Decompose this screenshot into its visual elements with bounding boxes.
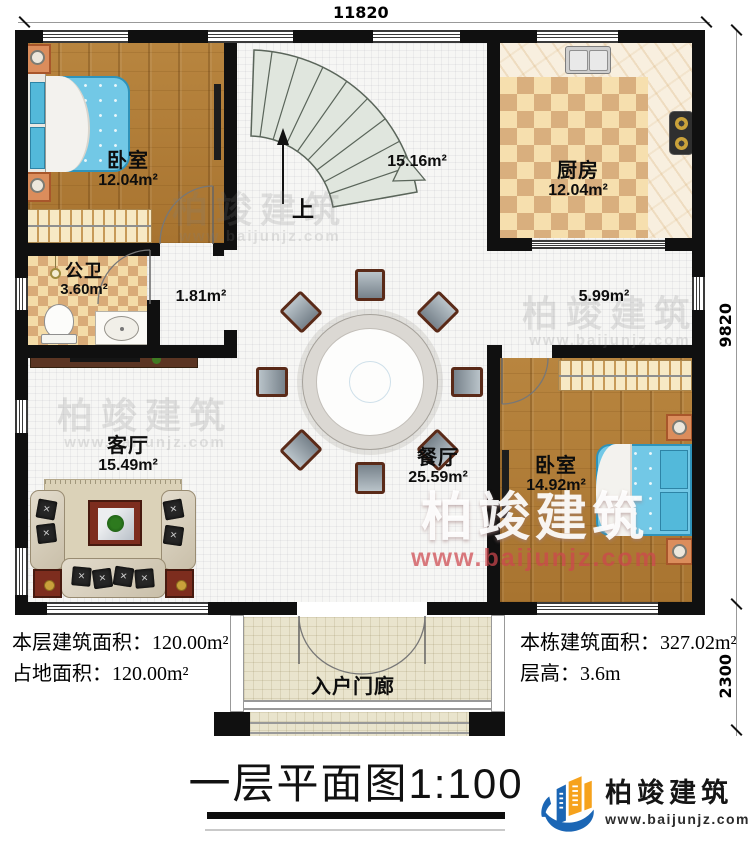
wall-bottom [427, 602, 537, 615]
sofa-cushion: ✕ [134, 568, 155, 589]
wall-bottom [658, 602, 705, 615]
nightstand [666, 538, 693, 565]
window [537, 602, 658, 615]
wall-bedroom-left [224, 43, 237, 250]
brand-website: www.baijunjz.com [605, 811, 750, 827]
dimension-line-top [18, 22, 710, 23]
wall-kitchen-left [487, 43, 500, 250]
label-hallway-area: 1.81m² [176, 288, 227, 306]
window [208, 30, 293, 43]
bed-left-pillow [30, 82, 45, 124]
sink-basin [569, 50, 588, 71]
sofa-cushion: ✕ [36, 523, 57, 544]
dining-chair [355, 462, 385, 494]
tv-bedroom-right [502, 450, 509, 518]
sink-basin [589, 50, 608, 71]
stats-right: 本栋建筑面积：327.02m² 层高：3.6m [520, 628, 737, 690]
label-bathroom: 公卫 3.60m² [60, 262, 108, 298]
porch-column [469, 712, 505, 736]
wall-kitchen-bottom [487, 238, 532, 251]
window [47, 602, 208, 615]
bed-left-pillow [30, 127, 45, 169]
brand-logo-icon [540, 770, 599, 836]
plant-icon [107, 515, 124, 532]
floor-plan-canvas: 11820 9820 2300 ✕ ✕ [0, 0, 750, 842]
stove [669, 111, 694, 155]
door-bedroom-right [500, 356, 550, 406]
label-stair-hall-area: 15.16m² [387, 153, 447, 171]
label-living: 客厅 15.49m² [98, 435, 158, 475]
lamp-icon [672, 544, 687, 559]
nightstand [24, 172, 51, 202]
stats-land-area: 占地面积：120.00m² [12, 659, 229, 690]
wall-kitchen-bottom [665, 238, 692, 251]
label-up: 上 [292, 192, 314, 224]
toilet-tank [41, 334, 77, 344]
side-table [165, 569, 194, 598]
nightstand [666, 414, 693, 441]
porch-step-line [250, 722, 469, 724]
wall-right [692, 30, 705, 615]
wardrobe-bedroom-right [558, 360, 692, 391]
title-underline-thin [205, 829, 505, 831]
spiral-staircase [235, 40, 450, 232]
label-corridor-area: 5.99m² [579, 288, 630, 306]
gold-medallion-icon [44, 580, 55, 591]
sofa-cushion: ✕ [163, 525, 184, 546]
porch-step-line [244, 700, 491, 702]
dining-chair [256, 367, 288, 397]
dimension-top-label: 11820 [333, 3, 389, 22]
sliding-door [532, 240, 665, 249]
side-table [33, 569, 62, 598]
bed-right-pillow [660, 450, 688, 489]
lamp-icon [30, 50, 45, 65]
lamp-icon [30, 178, 45, 193]
porch-step-line [250, 732, 469, 734]
stats-left: 本层建筑面积：120.00m² 占地面积：120.00m² [12, 628, 229, 690]
sofa-cushion: ✕ [162, 498, 184, 520]
brand-text-block: 柏竣建筑 www.baijunjz.com [605, 779, 750, 827]
lamp-icon [672, 420, 687, 435]
sofa-cushion: ✕ [71, 566, 92, 587]
window [15, 400, 28, 433]
sofa-cushion: ✕ [113, 566, 135, 588]
porch-jamb-left [230, 615, 244, 712]
gold-medallion-icon [176, 580, 187, 591]
label-porch: 入户门廊 [311, 670, 395, 699]
sink-drain-icon [120, 327, 124, 331]
window [15, 278, 28, 310]
wall-bottom [208, 602, 297, 615]
label-bedroom-left: 卧室 12.04m² [98, 150, 158, 190]
stats-floor-area: 本层建筑面积：120.00m² [12, 628, 229, 659]
kitchen-floor [500, 77, 648, 238]
wall-left [15, 30, 28, 615]
dining-chair [355, 269, 385, 301]
dimension-right-upper-label: 9820 [716, 303, 735, 348]
sofa-cushion: ✕ [35, 498, 57, 520]
coffee-table [88, 500, 142, 546]
title-underline [207, 812, 505, 819]
wall-bathroom-bottom [15, 345, 237, 358]
tv-bedroom-left [214, 84, 221, 160]
stats-floor-height: 层高：3.6m [520, 659, 737, 690]
label-dining: 餐厅 25.59m² [408, 447, 468, 487]
stats-total-area: 本栋建筑面积：327.02m² [520, 628, 737, 659]
brand-logo: 柏竣建筑 www.baijunjz.com [540, 768, 750, 838]
bed-right-pillow [660, 492, 688, 531]
porch-step-line [244, 708, 491, 710]
window [537, 30, 618, 43]
porch-jamb-right [491, 615, 505, 712]
wardrobe-bedroom-left [25, 209, 152, 243]
entrance-double-door [297, 614, 427, 676]
dining-chair [451, 367, 483, 397]
window [43, 30, 128, 43]
wall-bedroom-right-top [552, 345, 692, 358]
porch-column [214, 712, 250, 736]
label-kitchen: 厨房 12.04m² [548, 160, 608, 200]
bed-right-sheet [596, 444, 632, 536]
burner-icon [675, 117, 688, 130]
sofa-cushion: ✕ [92, 568, 113, 589]
dining-table-center [349, 361, 391, 403]
window [373, 30, 460, 43]
label-bedroom-right: 卧室 14.92m² [526, 455, 586, 495]
wall-bedroom-right-left [487, 358, 500, 602]
nightstand [24, 44, 51, 74]
toilet [44, 304, 74, 338]
burner-icon [675, 137, 688, 150]
brand-name: 柏竣建筑 [605, 779, 750, 809]
window [692, 277, 705, 310]
wall-bathroom-right [147, 300, 160, 358]
wall-bottom [15, 602, 47, 615]
door-bedroom-left [158, 184, 218, 246]
window [15, 548, 28, 595]
kitchen-sink [565, 46, 611, 74]
page-title: 一层平面图1:100 [188, 750, 523, 811]
dining-table [302, 314, 438, 450]
